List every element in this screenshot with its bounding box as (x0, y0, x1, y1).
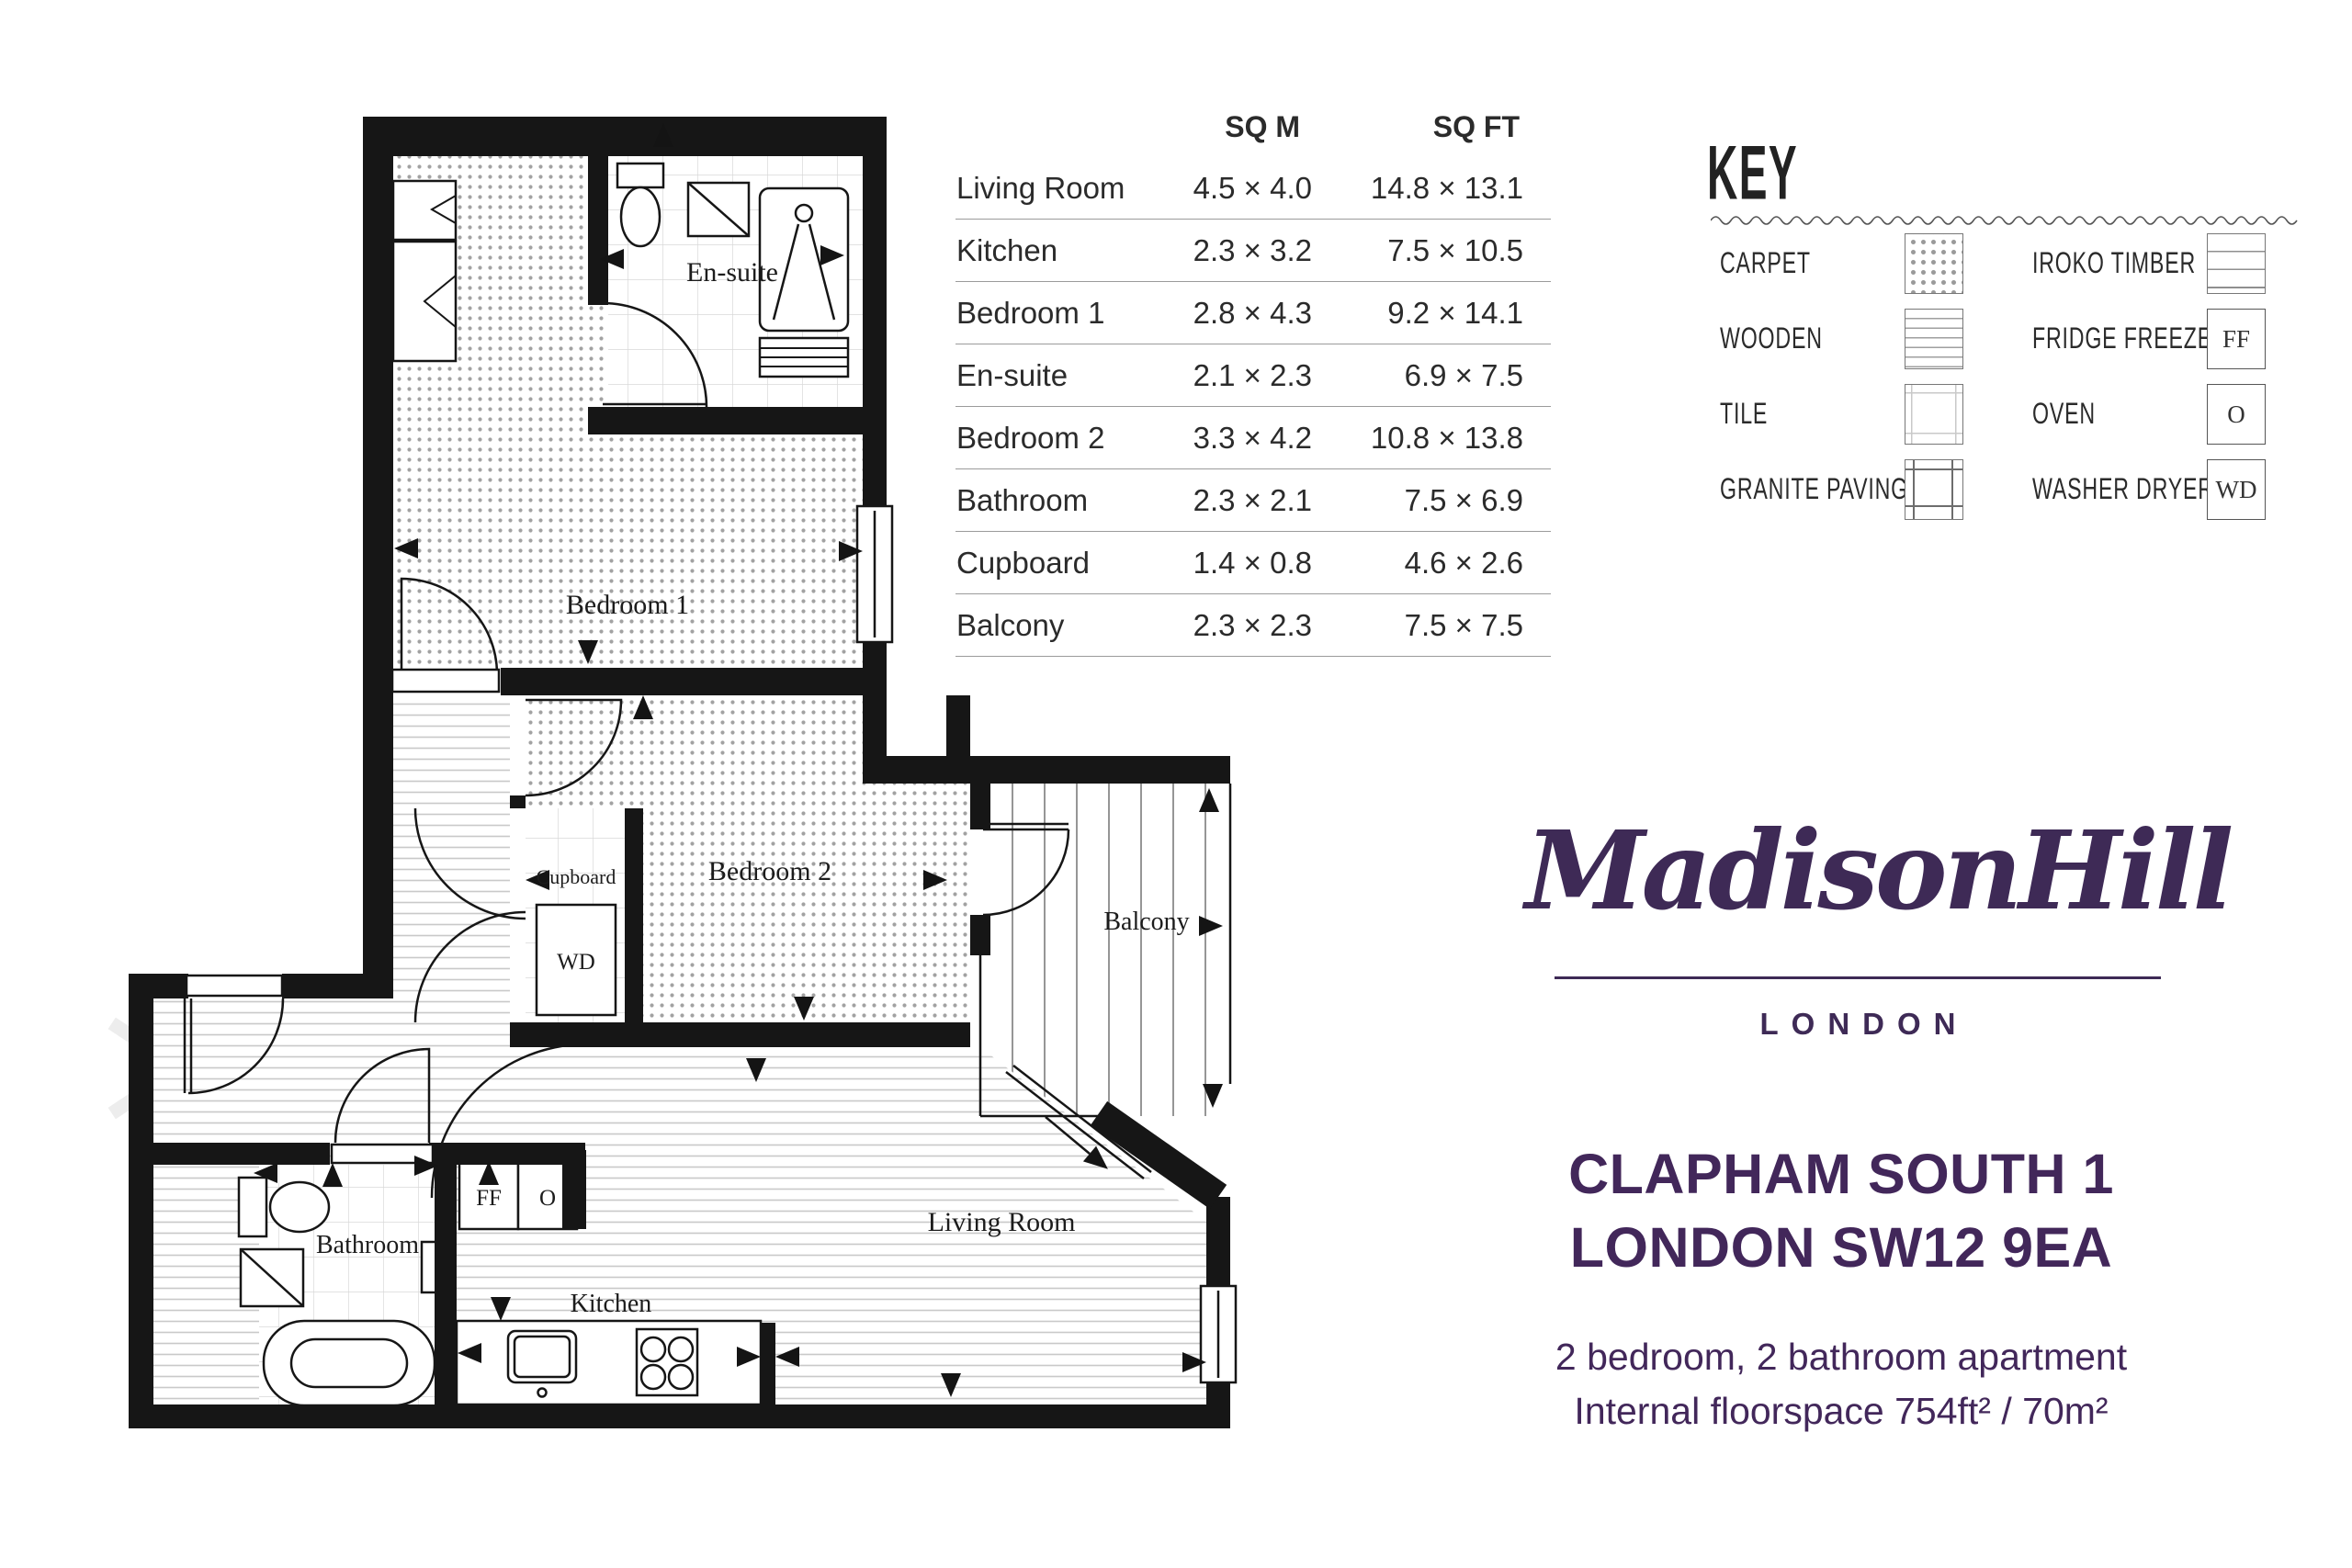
wardrobe-niche (393, 181, 456, 240)
property-title-line1: CLAPHAM SOUTH 1 (1553, 1137, 2130, 1211)
floorplan-sheet: { "colors": { "brand_purple": "#42275A",… (0, 0, 2352, 1568)
madison-hill-logo: MadisonHill (1525, 807, 2196, 934)
key-right-swatches: FF O WD (2207, 226, 2266, 527)
balcony-floor (990, 784, 1230, 1116)
col-header-sqft: SQ FT (1313, 110, 1551, 157)
room-name: Kitchen (955, 220, 1141, 282)
cupboard-label: Cupboard (537, 865, 616, 888)
logo-divider (1555, 976, 2161, 979)
room-sqft: 9.2 × 14.1 (1313, 282, 1551, 344)
granite-paving-swatch-icon (1905, 459, 1963, 520)
key-item-label: IROKO TIMBER (2032, 247, 2196, 281)
fridge-freezer-label: FF (476, 1186, 502, 1211)
property-summary: 2 bedroom, 2 bathroom apartment Internal… (1503, 1330, 2179, 1438)
wooden-swatch-icon (1905, 309, 1963, 369)
room-sqft: 6.9 × 7.5 (1313, 344, 1551, 407)
kitchen-counter (457, 1321, 761, 1404)
table-row: Bathroom 2.3 × 2.1 7.5 × 6.9 (955, 469, 1551, 532)
room-sqft: 10.8 × 13.8 (1313, 407, 1551, 469)
room-sqm: 2.3 × 2.3 (1141, 594, 1313, 657)
bathroom-cistern (239, 1178, 266, 1236)
table-row: En-suite 2.1 × 2.3 6.9 × 7.5 (955, 344, 1551, 407)
room-name: Bathroom (955, 469, 1141, 532)
room-sqm: 2.1 × 2.3 (1141, 344, 1313, 407)
bedroom1-label: Bedroom 1 (566, 590, 689, 620)
room-name: Bedroom 1 (955, 282, 1141, 344)
bedroom2-floor-ext (863, 784, 970, 1047)
property-summary-line1: 2 bedroom, 2 bathroom apartment (1503, 1330, 2179, 1384)
hob-ring-icon (669, 1365, 693, 1389)
hob-ring-icon (669, 1337, 693, 1361)
key-item-label: CARPET (1720, 247, 1811, 281)
room-sqft: 7.5 × 10.5 (1313, 220, 1551, 282)
shower-head-icon (796, 205, 812, 221)
kitchen-sink-inner (514, 1337, 570, 1377)
oven-label: O (539, 1186, 556, 1211)
tile-swatch-icon (1905, 384, 1963, 445)
room-sqm: 3.3 × 4.2 (1141, 407, 1313, 469)
key-item-label: WOODEN (1720, 322, 1823, 356)
logo-city: LONDON (1555, 1007, 2161, 1042)
property-title-line2: LONDON SW12 9EA (1553, 1211, 2130, 1284)
bathroom-label: Bathroom (316, 1231, 419, 1259)
property-summary-line2: Internal floorspace 754ft² / 70m² (1503, 1384, 2179, 1438)
kitchen-label: Kitchen (571, 1290, 652, 1318)
door-sill (187, 976, 282, 996)
oven-key-box: O (2207, 384, 2266, 445)
room-sqft: 7.5 × 6.9 (1313, 469, 1551, 532)
room-name: Balcony (955, 594, 1141, 657)
table-row: Balcony 2.3 × 2.3 7.5 × 7.5 (955, 594, 1551, 657)
key-item-label: GRANITE PAVING (1720, 473, 1908, 507)
table-row: Bedroom 1 2.8 × 4.3 9.2 × 14.1 (955, 282, 1551, 344)
property-title: CLAPHAM SOUTH 1 LONDON SW12 9EA (1553, 1137, 2130, 1284)
fridge-freezer-key-box: FF (2207, 309, 2266, 369)
ensuite-toilet (621, 187, 660, 246)
table-row: Cupboard 1.4 × 0.8 4.6 × 2.6 (955, 532, 1551, 594)
key-item-label: OVEN (2032, 398, 2096, 432)
washer-dryer-label: WD (557, 950, 595, 975)
washer-dryer-key-box: WD (2207, 459, 2266, 520)
key-item-label: WASHER DRYER (2032, 473, 2214, 507)
table-header-row: SQ M SQ FT (955, 110, 1551, 157)
living-room-label: Living Room (928, 1207, 1076, 1237)
table-row: Bedroom 2 3.3 × 4.2 10.8 × 13.8 (955, 407, 1551, 469)
room-name: Cupboard (955, 532, 1141, 594)
ensuite-cistern (617, 164, 663, 187)
room-name: En-suite (955, 344, 1141, 407)
carpet-swatch-icon (1905, 233, 1963, 294)
key-title: KEY (1707, 129, 1798, 217)
key-item-label: FRIDGE FREEZER (2032, 322, 2229, 356)
kitchen-tap-icon (538, 1389, 547, 1397)
table-row: Living Room 4.5 × 4.0 14.8 × 13.1 (955, 157, 1551, 220)
iroko-timber-swatch-icon (2207, 233, 2266, 294)
room-sqm: 2.3 × 2.1 (1141, 469, 1313, 532)
bath-inner (291, 1339, 407, 1387)
bathroom-toilet (270, 1182, 329, 1232)
balcony-label: Balcony (1103, 908, 1189, 936)
room-sqm: 1.4 × 0.8 (1141, 532, 1313, 594)
hob-ring-icon (641, 1365, 665, 1389)
key-item-label: TILE (1720, 398, 1768, 432)
door-sill (392, 670, 499, 692)
room-name: Bedroom 2 (955, 407, 1141, 469)
room-sqm: 2.3 × 3.2 (1141, 220, 1313, 282)
key-left-swatches (1905, 226, 1963, 527)
room-sqm: 2.8 × 4.3 (1141, 282, 1313, 344)
room-sqft: 4.6 × 2.6 (1313, 532, 1551, 594)
hob-ring-icon (641, 1337, 665, 1361)
col-header-sqm: SQ M (1141, 110, 1313, 157)
room-sqm: 4.5 × 4.0 (1141, 157, 1313, 220)
room-name: Living Room (955, 157, 1141, 220)
table-row: Kitchen 2.3 × 3.2 7.5 × 10.5 (955, 220, 1551, 282)
room-sqft: 14.8 × 13.1 (1313, 157, 1551, 220)
ensuite-label: En-suite (686, 257, 778, 288)
room-sqft: 7.5 × 7.5 (1313, 594, 1551, 657)
bedroom2-label: Bedroom 2 (708, 856, 831, 886)
dimensions-table: SQ M SQ FT Living Room 4.5 × 4.0 14.8 × … (955, 110, 1551, 657)
